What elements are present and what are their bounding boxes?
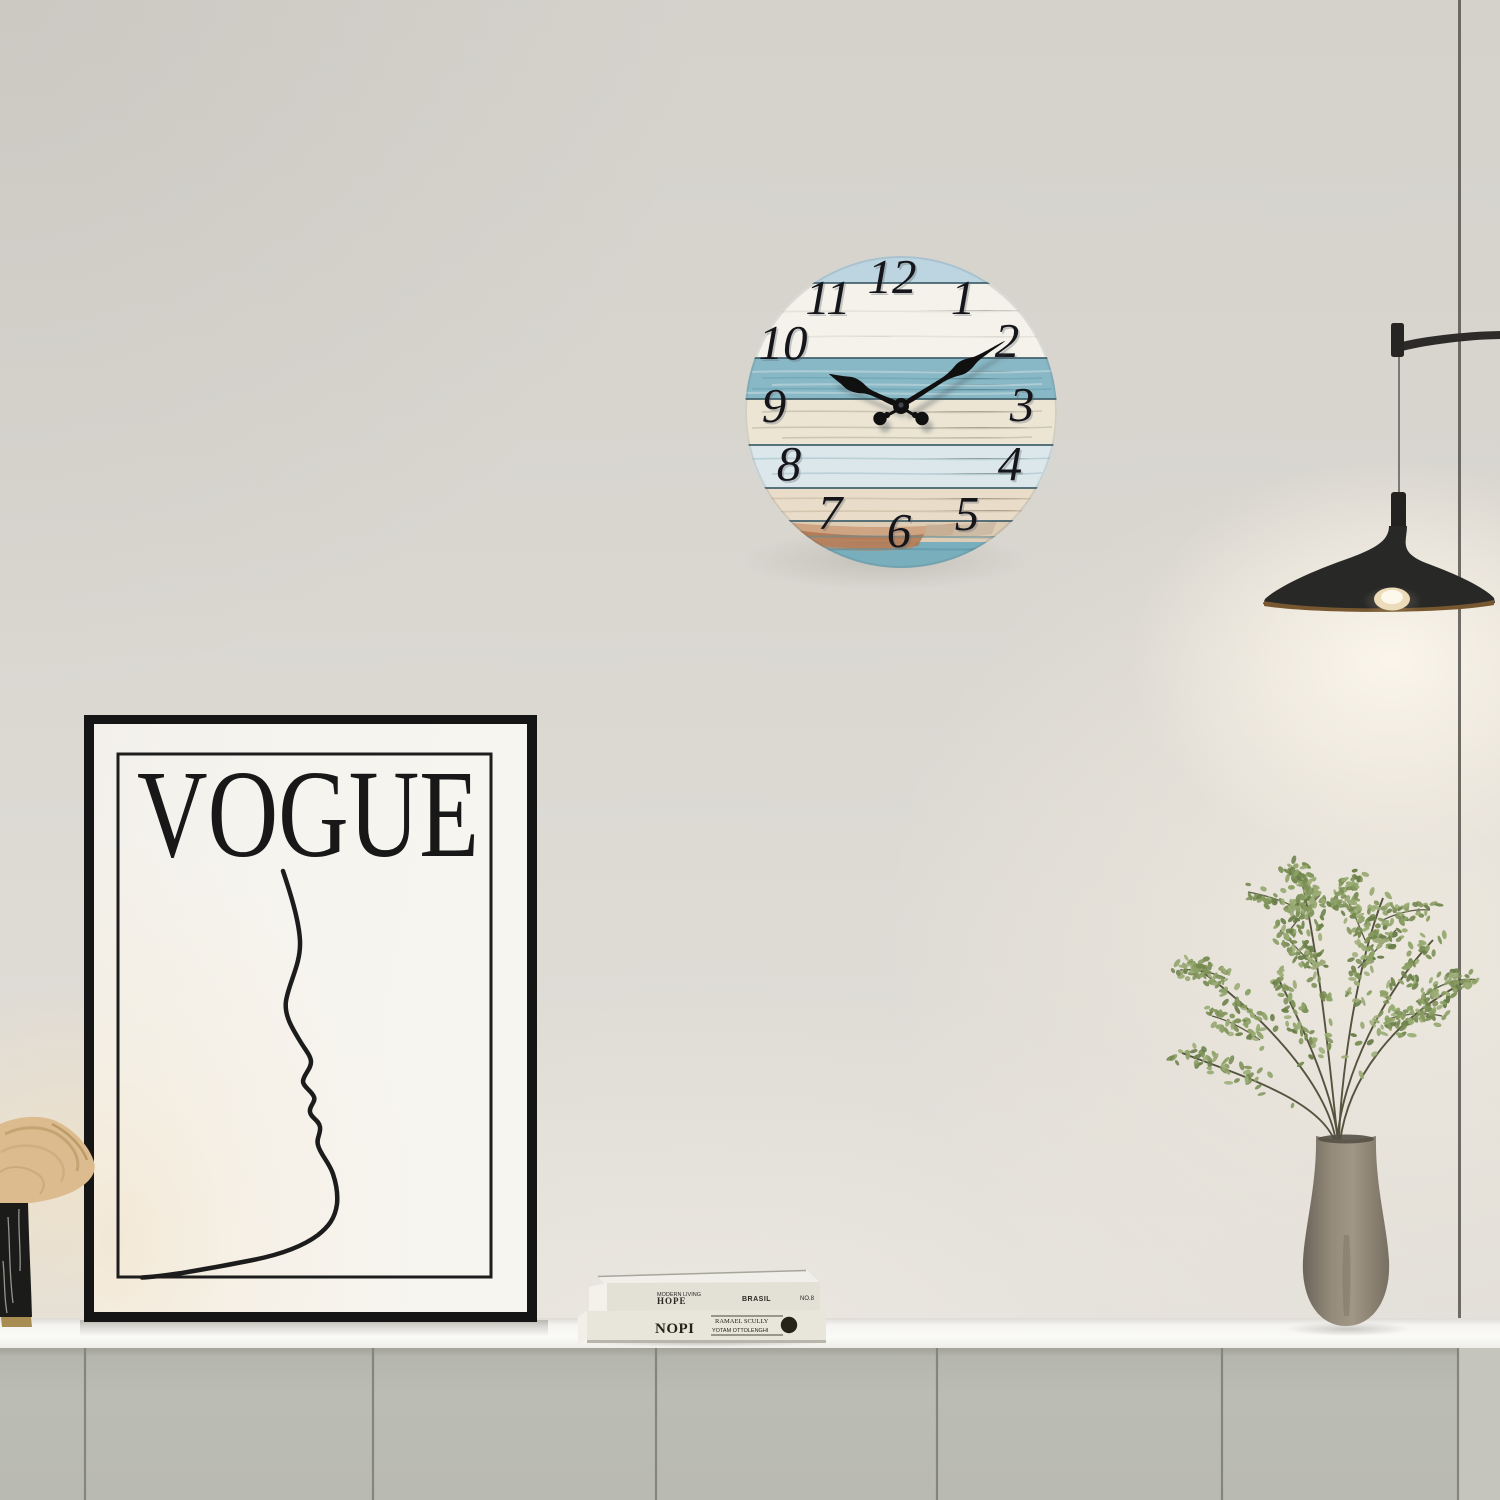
- svg-text:YOTAM OTTOLENGHI: YOTAM OTTOLENGHI: [712, 1328, 769, 1334]
- svg-text:7: 7: [818, 485, 845, 540]
- svg-text:HOPE: HOPE: [657, 1296, 687, 1306]
- svg-text:12: 12: [868, 252, 917, 304]
- svg-text:11: 11: [805, 270, 850, 325]
- svg-text:VOGUE: VOGUE: [137, 746, 479, 884]
- svg-text:NO.8: NO.8: [800, 1296, 815, 1302]
- svg-text:RAMAEL SCULLY: RAMAEL SCULLY: [715, 1318, 769, 1325]
- svg-text:10: 10: [759, 315, 808, 370]
- svg-text:9: 9: [762, 378, 787, 433]
- svg-text:3: 3: [1009, 377, 1035, 432]
- svg-text:BRASIL: BRASIL: [742, 1296, 771, 1303]
- svg-text:4: 4: [998, 436, 1023, 491]
- svg-text:5: 5: [955, 486, 980, 541]
- svg-text:8: 8: [777, 436, 802, 491]
- svg-text:1: 1: [951, 270, 976, 325]
- svg-text:6: 6: [887, 503, 912, 558]
- svg-text:NOPI: NOPI: [655, 1321, 695, 1337]
